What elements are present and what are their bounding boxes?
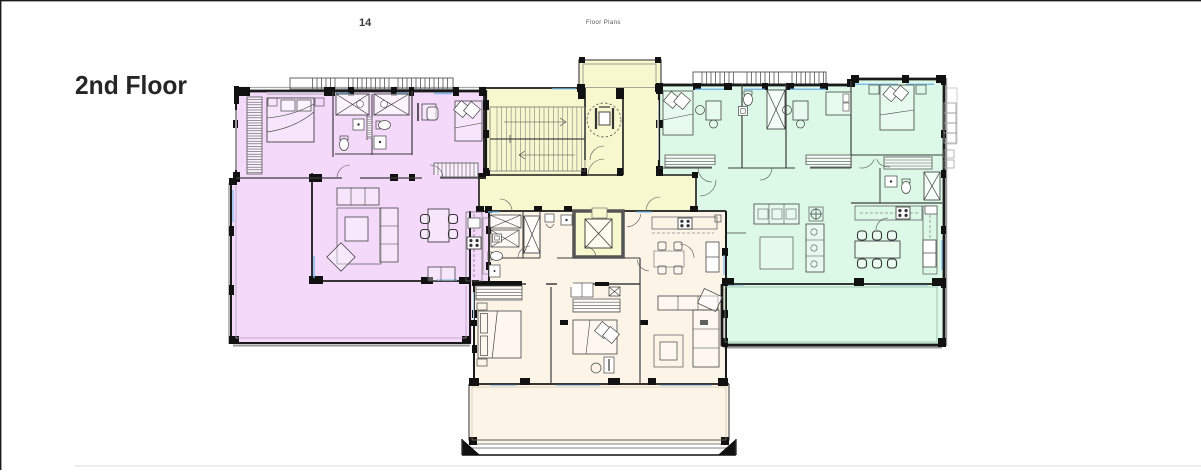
svg-text:Floor Plans: Floor Plans bbox=[586, 20, 621, 26]
svg-text:14: 14 bbox=[359, 17, 372, 29]
svg-text:2nd Floor: 2nd Floor bbox=[75, 70, 187, 100]
